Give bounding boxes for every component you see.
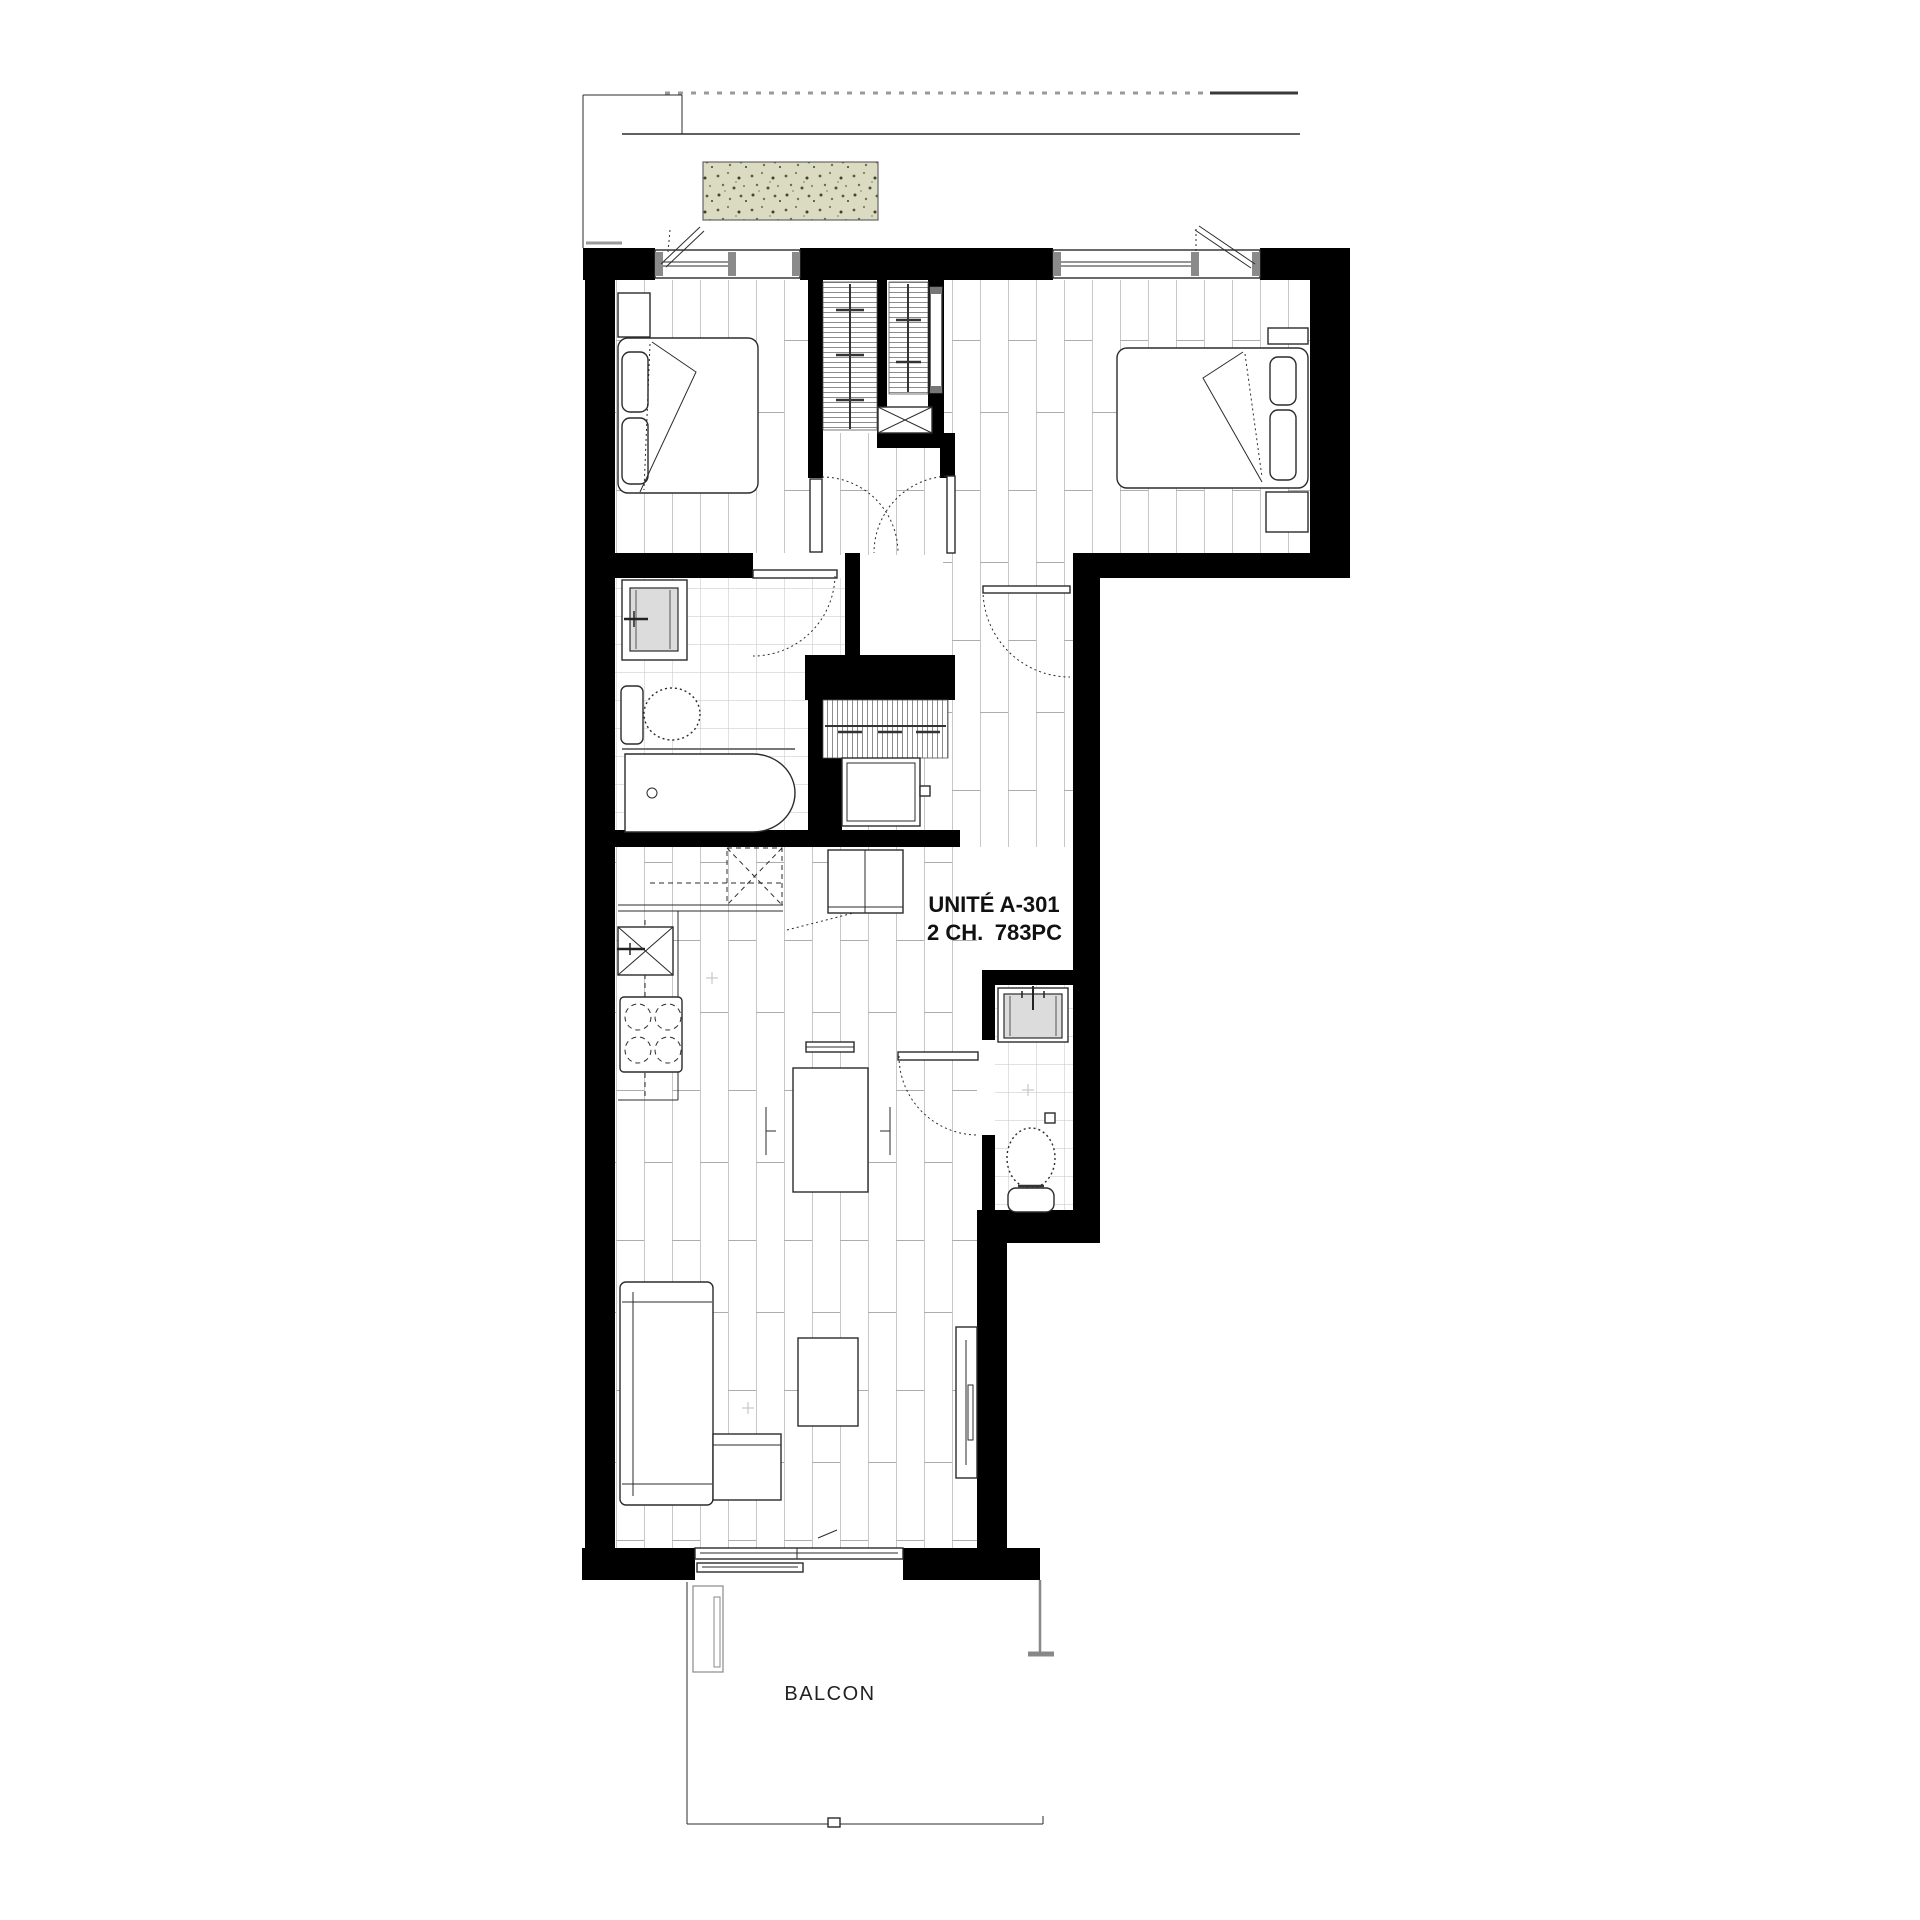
unit-area-label: 783PC (995, 920, 1062, 945)
wall-powder-north (982, 970, 1075, 985)
pillow (622, 418, 648, 484)
bed-double-2 (1117, 348, 1308, 488)
window-bedroom-2 (1053, 226, 1260, 278)
pillow (1270, 357, 1296, 405)
pillow (622, 352, 648, 412)
vestibule-floor (823, 433, 943, 555)
closet-sliding-door (930, 287, 942, 393)
window-bedroom-1 (655, 227, 800, 278)
sofa-chaise (713, 1434, 781, 1500)
unit-bedrooms-label: 2 CH. (927, 920, 983, 945)
closet-bedroom-1 (823, 282, 877, 430)
planter-bed (703, 162, 878, 220)
balcony-drain (828, 1818, 840, 1827)
nightstand (1266, 492, 1308, 532)
nightstand (1268, 328, 1308, 344)
wall-east-corridor (1073, 553, 1100, 1243)
wall-west (585, 248, 615, 1580)
wall-step-east (1007, 1210, 1100, 1243)
balcony-label: BALCON (784, 1683, 875, 1705)
balcony-post (1028, 1580, 1054, 1654)
unit-number-label: UNITÉ A-301 (928, 892, 1059, 917)
wall-bathroom-north (585, 553, 753, 578)
wall-hall-closet-north (805, 655, 955, 700)
wall-washer-nook (808, 758, 842, 830)
floor-plan-page: UNITÉ A-301 2 CH. 783PC BALCON (0, 0, 1920, 1920)
valve-box (920, 786, 930, 796)
bed-double-1 (618, 338, 758, 493)
wall-top-middle (800, 248, 1053, 280)
vanity-sink (998, 986, 1068, 1042)
wall-closet2-south (877, 432, 944, 448)
nightstand (618, 293, 650, 337)
vanity-sink (622, 580, 687, 660)
closet-bedroom-2 (878, 282, 942, 433)
wall-powder-west-upper (982, 970, 995, 1040)
tv-console (956, 1327, 977, 1478)
wall-bathroom-east (845, 553, 860, 657)
wall-east-bedroom2 (1310, 248, 1350, 578)
kitchen-sink (617, 927, 673, 975)
floor-drain (1045, 1113, 1055, 1123)
fridge (828, 850, 903, 913)
wall-powder-west-lower (982, 1135, 995, 1215)
site-boundary-lines (583, 93, 1300, 248)
toilet (621, 686, 700, 744)
pillow (1270, 410, 1296, 480)
wall-bottom-right (903, 1548, 1040, 1580)
corridor-floor (943, 578, 1073, 847)
wall-east-living (977, 1210, 1007, 1580)
washer-dryer (842, 758, 930, 826)
powder-room (995, 985, 1073, 1212)
balcony-storage-unit (693, 1586, 723, 1672)
wall-bedroom2-south (1073, 553, 1350, 578)
hall-closet (823, 700, 948, 758)
bathtub (622, 749, 795, 832)
coffee-table (798, 1338, 858, 1426)
cooktop (620, 997, 682, 1072)
toilet (1007, 1128, 1055, 1212)
closet-shelf-unit (878, 407, 932, 433)
floor-plan-drawing: UNITÉ A-301 2 CH. 783PC BALCON (0, 0, 1920, 1920)
wall-bedroom1-east (808, 280, 823, 478)
